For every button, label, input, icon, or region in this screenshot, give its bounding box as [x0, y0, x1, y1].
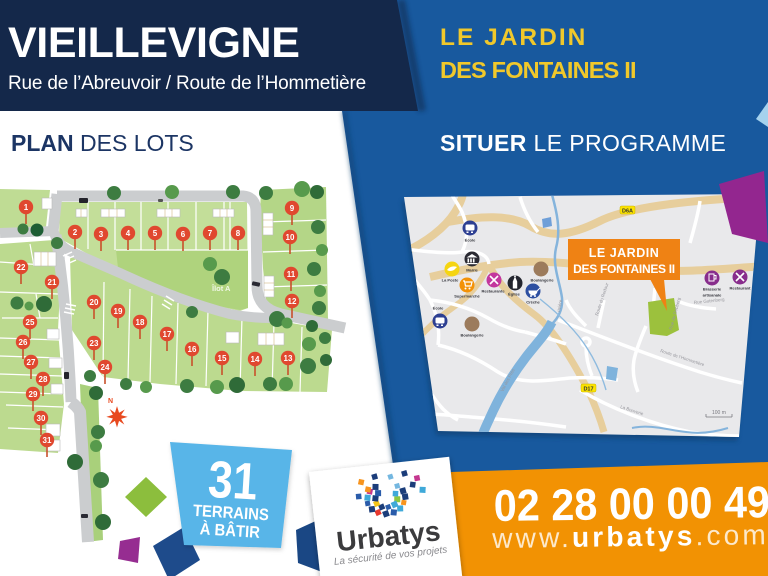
svg-text:Supermarché: Supermarché	[454, 294, 480, 299]
svg-text:Crèche: Crèche	[526, 300, 540, 305]
svg-text:École: École	[465, 238, 476, 243]
svg-text:D6A: D6A	[622, 209, 633, 215]
svg-text:20: 20	[90, 298, 99, 307]
svg-text:Boulangerie: Boulangerie	[460, 333, 484, 338]
svg-text:18: 18	[136, 318, 145, 327]
svg-text:SITUER LE PROGRAMME: SITUER LE PROGRAMME	[440, 130, 726, 156]
svg-text:25: 25	[26, 318, 35, 327]
svg-text:13: 13	[284, 354, 293, 363]
svg-text:22: 22	[17, 263, 26, 272]
svg-text:27: 27	[27, 358, 36, 367]
svg-text:PLAN DES LOTS: PLAN DES LOTS	[11, 130, 194, 156]
svg-text:6: 6	[181, 230, 186, 239]
svg-text:DES FONTAINES II: DES FONTAINES II	[573, 262, 675, 276]
svg-text:École: École	[433, 306, 444, 311]
svg-text:2: 2	[73, 228, 78, 237]
svg-text:1: 1	[24, 203, 29, 212]
svg-text:16: 16	[188, 345, 197, 354]
svg-text:12: 12	[288, 297, 297, 306]
svg-text:23: 23	[90, 339, 99, 348]
svg-text:29: 29	[29, 390, 38, 399]
svg-text:Restaurante: Restaurante	[481, 289, 505, 294]
svg-text:Église: Église	[508, 292, 521, 297]
svg-text:Brasserie: Brasserie	[703, 287, 722, 292]
svg-text:11: 11	[287, 270, 296, 279]
svg-text:Îlot A: Îlot A	[211, 284, 231, 293]
svg-text:26: 26	[19, 338, 28, 347]
svg-text:VIEILLEVIGNE: VIEILLEVIGNE	[8, 19, 299, 67]
svg-text:Restaurant: Restaurant	[730, 286, 752, 291]
svg-text:N: N	[108, 398, 113, 405]
svg-text:5: 5	[153, 229, 158, 238]
svg-text:4: 4	[126, 229, 131, 238]
svg-text:Boulangerie: Boulangerie	[530, 278, 554, 283]
svg-text:Mairie: Mairie	[466, 268, 478, 273]
svg-text:D17: D17	[583, 387, 593, 393]
svg-text:21: 21	[48, 278, 57, 287]
svg-text:Rue de l’Abreuvoir / Route de: Rue de l’Abreuvoir / Route de l’Hommetiè…	[8, 73, 366, 94]
svg-text:15: 15	[218, 354, 227, 363]
svg-text:14: 14	[251, 355, 260, 364]
svg-text:24: 24	[101, 363, 110, 372]
svg-text:www.urbatys.com: www.urbatys.com	[491, 519, 768, 554]
svg-text:artisanale: artisanale	[703, 293, 722, 298]
svg-text:19: 19	[114, 307, 123, 316]
svg-text:10: 10	[286, 233, 295, 242]
svg-text:31: 31	[43, 436, 52, 445]
svg-text:LE JARDIN: LE JARDIN	[440, 24, 587, 51]
svg-text:3: 3	[99, 230, 104, 239]
svg-text:8: 8	[236, 229, 241, 238]
svg-text:100 m: 100 m	[712, 410, 726, 416]
svg-text:30: 30	[37, 414, 46, 423]
svg-text:9: 9	[290, 204, 295, 213]
svg-text:7: 7	[208, 229, 213, 238]
svg-text:31: 31	[207, 450, 260, 511]
svg-text:DES FONTAINES II: DES FONTAINES II	[440, 57, 636, 83]
svg-text:La Poste: La Poste	[442, 278, 459, 283]
svg-text:LE JARDIN: LE JARDIN	[589, 246, 659, 260]
svg-text:28: 28	[39, 375, 48, 384]
svg-text:17: 17	[163, 330, 172, 339]
